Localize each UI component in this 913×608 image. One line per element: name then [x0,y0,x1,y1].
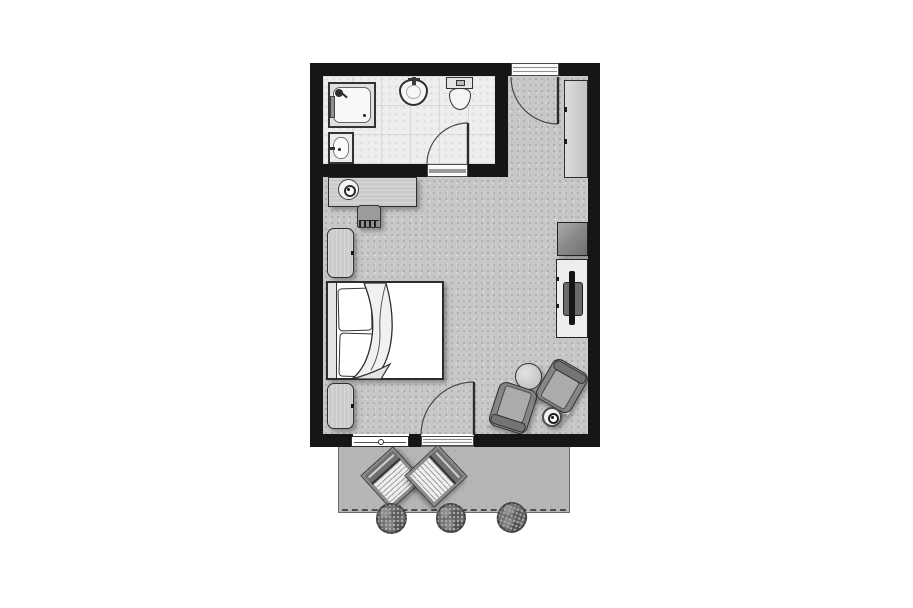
desk-chair [357,205,381,228]
bed [326,281,444,380]
bathroom-door-threshold [427,164,468,177]
shower [328,82,376,128]
wall-bottom-left [310,434,353,447]
tv-cabinet [556,259,588,338]
wall-bottom-right [474,434,600,447]
cabinet-handle [556,277,559,281]
threshold-line [423,442,472,443]
balcony-door-threshold [421,436,474,446]
wall-bottom-stub [409,434,421,447]
headboard [328,283,337,378]
nightstand-knob [351,404,354,408]
wall-bathroom-vertical [495,76,508,177]
lamp-center [347,188,350,191]
window-handle [378,439,384,445]
desk-lamp [338,179,359,200]
shrub [436,503,466,533]
nightstand-bottom [327,383,354,429]
washbasin-tap [330,147,335,150]
wardrobe [564,80,588,178]
wardrobe-handle [564,107,567,112]
threshold-band [429,169,466,173]
floor-plan-canvas [0,0,913,608]
shower-rail [330,96,335,118]
threshold-line [513,71,557,72]
pillow [338,333,374,378]
shower-drain [363,114,366,117]
pillow [337,288,372,332]
minibar [557,222,588,256]
entry-door-threshold [511,63,559,76]
wall-left [310,63,323,447]
wall-right [588,63,600,447]
cabinet-handle [556,304,559,308]
tv [569,271,575,325]
desk-chair-ribs [359,220,379,227]
toilet-flush-button [456,80,465,86]
threshold-line [423,439,472,440]
wall-bathroom-horizontal-right [468,164,495,177]
threshold-line [513,67,557,68]
nightstand-knob [351,251,354,255]
sink-bowl [406,85,421,99]
washbasin [328,132,354,164]
wall-top-left [310,63,511,76]
side-table-center [551,416,554,419]
sink-tap-bar [408,78,420,80]
washbasin-bowl [333,137,349,159]
wall-bathroom-horizontal [323,164,427,177]
washbasin-drain [338,148,341,151]
nightstand-top [327,228,354,278]
side-table [542,407,562,427]
window [351,436,409,447]
shrub [376,503,407,534]
wardrobe-handle [564,139,567,144]
